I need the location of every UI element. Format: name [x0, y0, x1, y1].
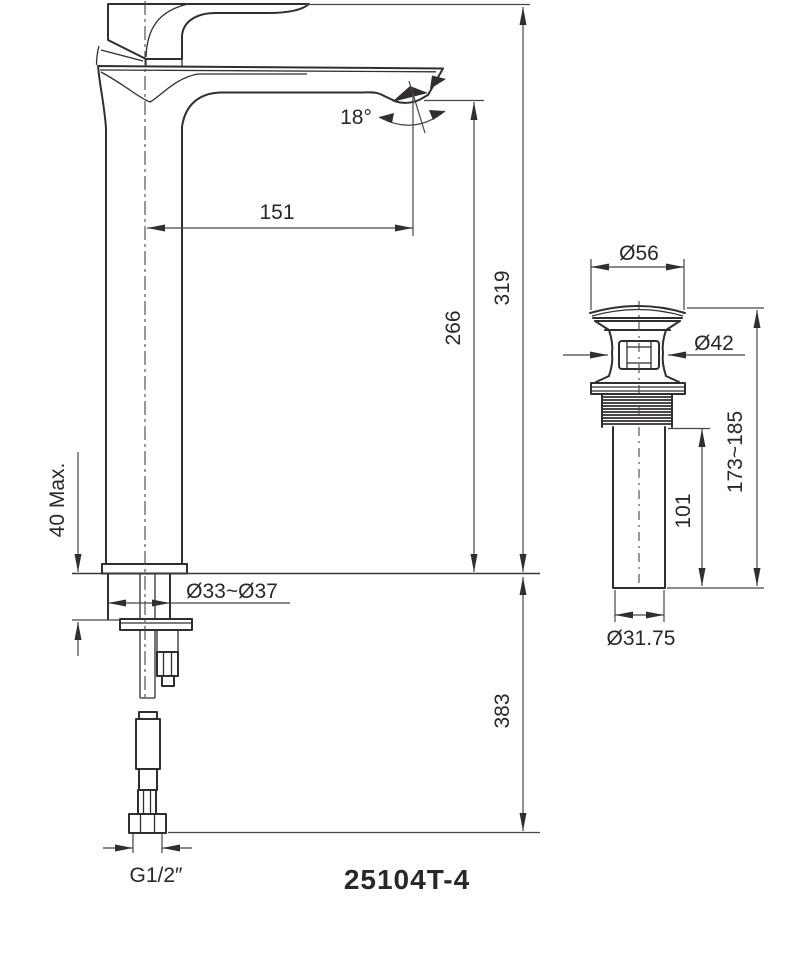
dim-label-o56: Ø56 — [619, 242, 659, 265]
faucet-handle — [108, 4, 309, 59]
dim-label-g12: G1/2″ — [130, 864, 184, 887]
dim-label-o42: Ø42 — [694, 332, 734, 355]
dim-label-hole: Ø33~Ø37 — [186, 580, 278, 603]
dim-spout-height: 266 — [442, 102, 478, 572]
dim-reach: 151 — [147, 201, 413, 232]
dim-label-o3175: Ø31.75 — [607, 627, 676, 650]
dim-inlet-thread: G1/2″ — [103, 833, 192, 887]
popup-drain-outline — [590, 306, 685, 588]
dim-label-40max: 40 Max. — [46, 463, 69, 538]
faucet-base-flange — [102, 564, 187, 574]
faucet-outline — [97, 4, 447, 833]
dim-label-383: 383 — [491, 693, 514, 728]
dim-label-101: 101 — [672, 493, 695, 528]
dim-label-173-185: 173~185 — [724, 411, 747, 493]
dim-total-height: 319 — [491, 7, 527, 572]
spout-tip-wedge — [430, 76, 446, 90]
dim-drain-pipe: Ø31.75 — [607, 590, 676, 650]
faucet-spec-drawing: 319 266 18° 151 — [0, 0, 790, 974]
dim-label-18deg: 18° — [340, 106, 372, 129]
dim-deck-thickness: 40 Max. — [46, 452, 82, 656]
hose-end-nut — [129, 814, 166, 833]
dim-label-319: 319 — [491, 270, 514, 305]
drain-threads — [602, 395, 672, 427]
dim-drain-tail: 101 — [672, 429, 706, 586]
dim-label-266: 266 — [442, 310, 465, 345]
dim-spout-angle: 18° — [340, 106, 445, 129]
dim-below-counter: 383 — [491, 577, 527, 831]
dim-hole-diameter: Ø33~Ø37 — [108, 580, 290, 607]
model-number: 25104T-4 — [344, 864, 470, 895]
dim-label-151: 151 — [259, 201, 294, 224]
dim-drain-cap: Ø56 — [591, 242, 684, 310]
technical-drawing-page: 319 266 18° 151 — [0, 0, 790, 974]
faucet-body — [98, 66, 443, 564]
mounting-washer — [120, 619, 192, 630]
